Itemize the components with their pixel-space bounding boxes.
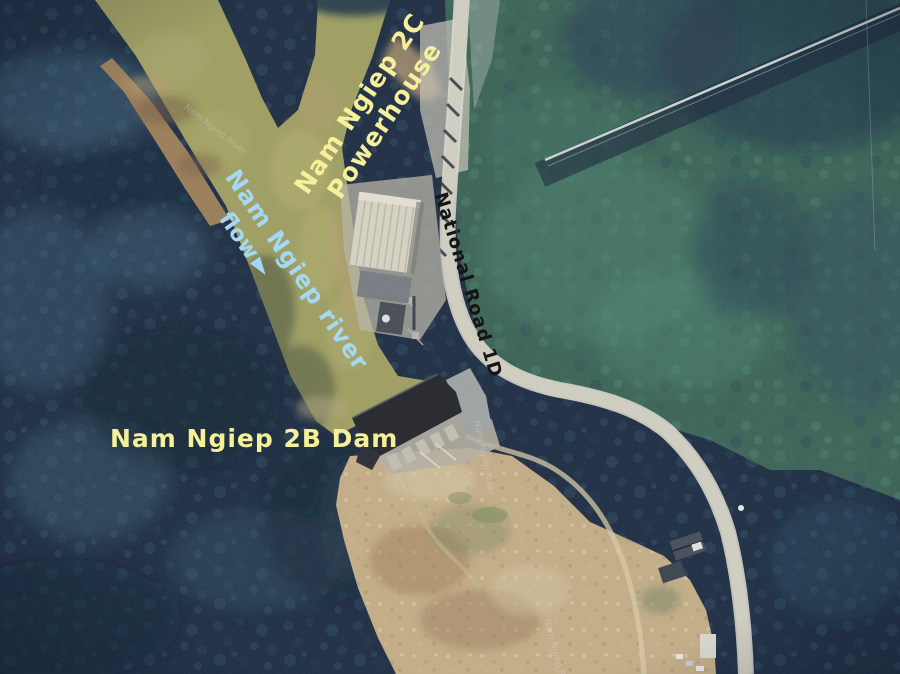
satellite-imagery [0, 0, 900, 674]
label-dam: Nam Ngiep 2B Dam [110, 424, 398, 453]
vignette [0, 0, 900, 674]
satellite-map: Nam Ngiep 2C Powerhouse Nam Ngiep river … [0, 0, 900, 674]
